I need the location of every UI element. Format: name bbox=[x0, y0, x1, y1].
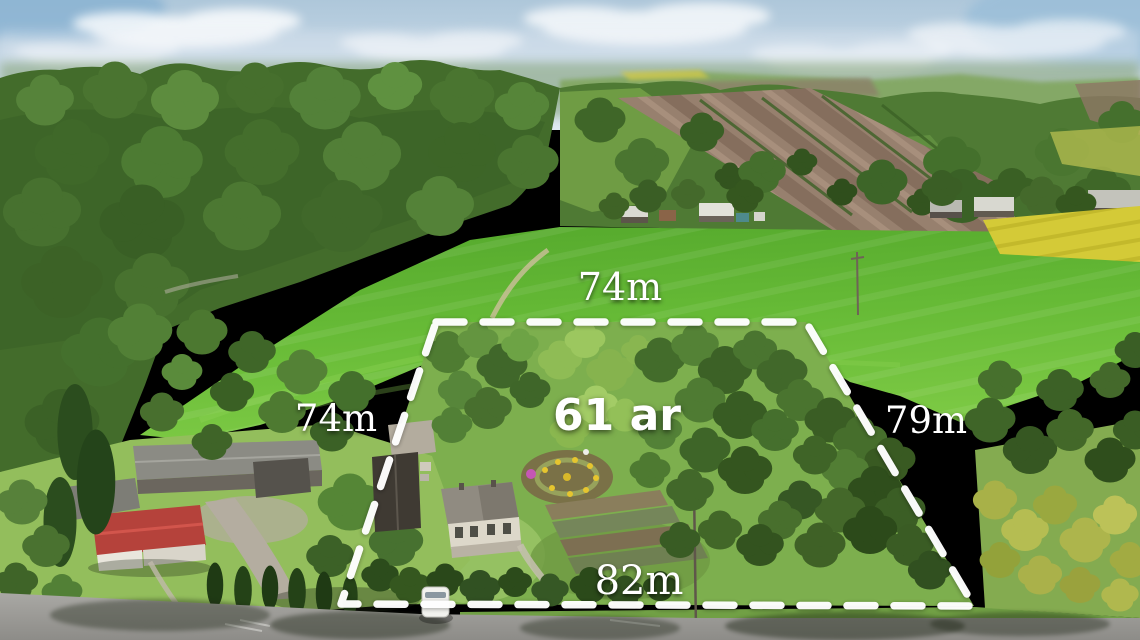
area-label: 61 ar bbox=[553, 390, 681, 441]
plot-house bbox=[441, 480, 522, 558]
dimension-label-bottom: 82m bbox=[595, 558, 684, 604]
aerial-property-photo: 74m 74m 79m 82m 61 ar bbox=[0, 0, 1140, 640]
dimension-label-left: 74m bbox=[295, 397, 377, 440]
dimension-label-right: 79m bbox=[885, 399, 967, 442]
dimension-label-top: 74m bbox=[578, 265, 662, 309]
